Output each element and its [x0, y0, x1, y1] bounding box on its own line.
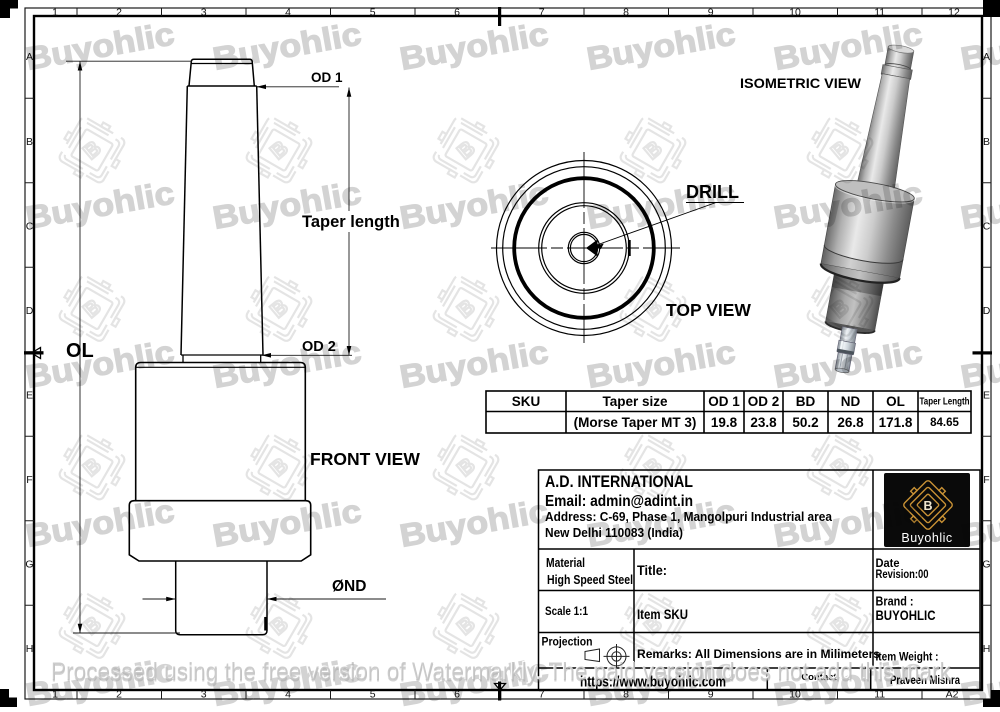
svg-text:OL: OL	[886, 394, 905, 409]
svg-text:FRONT VIEW: FRONT VIEW	[310, 449, 420, 469]
svg-text:1: 1	[52, 7, 58, 19]
svg-text:OD 2: OD 2	[748, 394, 780, 409]
svg-text:BUYOHLIC: BUYOHLIC	[876, 608, 936, 623]
svg-text:6: 6	[454, 7, 460, 19]
svg-text:Buyohlic: Buyohlic	[397, 15, 551, 77]
svg-text:Buyohlic: Buyohlic	[958, 333, 1000, 395]
svg-text:26.8: 26.8	[837, 415, 864, 430]
svg-text:B: B	[26, 136, 33, 148]
svg-text:Buyohlic: Buyohlic	[210, 492, 364, 554]
svg-text:12: 12	[948, 7, 960, 19]
svg-text:Projection: Projection	[542, 637, 593, 649]
svg-text:10: 10	[789, 7, 801, 19]
svg-text:Buyohlic: Buyohlic	[901, 531, 952, 545]
svg-text:5: 5	[370, 689, 376, 701]
svg-text:84.65: 84.65	[930, 417, 959, 429]
svg-text:G: G	[982, 559, 990, 571]
svg-text:Buyohlic: Buyohlic	[958, 15, 1000, 77]
svg-text:3: 3	[201, 7, 207, 19]
svg-text:B: B	[923, 499, 932, 513]
svg-text:Date: Date	[876, 556, 900, 570]
svg-text:Buyohlic: Buyohlic	[958, 174, 1000, 236]
svg-text:H: H	[983, 643, 991, 655]
svg-text:Buyohlic: Buyohlic	[397, 174, 551, 236]
svg-text:D: D	[983, 305, 991, 317]
svg-text:5: 5	[370, 7, 376, 19]
svg-text:9: 9	[708, 7, 714, 19]
svg-text:Brand :: Brand :	[876, 594, 914, 609]
svg-text:Scale 1:1: Scale 1:1	[545, 606, 589, 618]
svg-text:H: H	[26, 643, 34, 655]
svg-text:4: 4	[285, 7, 291, 19]
svg-text:Processed using the free versi: Processed using the free version of Wate…	[51, 658, 951, 686]
svg-text:Buyohlic: Buyohlic	[23, 15, 177, 77]
svg-text:19.8: 19.8	[711, 415, 738, 430]
svg-text:Buyohlic: Buyohlic	[958, 651, 1000, 707]
svg-text:Buyohlic: Buyohlic	[210, 15, 364, 77]
svg-text:Revision:00: Revision:00	[876, 569, 929, 581]
svg-text:ND: ND	[841, 394, 861, 409]
svg-text:Buyohlic: Buyohlic	[397, 492, 551, 554]
svg-text:F: F	[26, 474, 32, 486]
svg-text:G: G	[25, 559, 33, 571]
svg-text:D: D	[26, 305, 34, 317]
svg-text:Buyohlic: Buyohlic	[397, 333, 551, 395]
svg-text:50.2: 50.2	[792, 415, 818, 430]
svg-text:SKU: SKU	[512, 394, 541, 409]
svg-text:11: 11	[874, 7, 885, 19]
svg-text:Buyohlic: Buyohlic	[210, 333, 364, 395]
svg-text:Buyohlic: Buyohlic	[23, 492, 177, 554]
svg-text:Buyohlic: Buyohlic	[23, 333, 177, 395]
svg-text:OD 1: OD 1	[708, 394, 740, 409]
svg-text:F: F	[983, 474, 989, 486]
svg-text:A.D. INTERNATIONAL: A.D. INTERNATIONAL	[545, 473, 693, 491]
svg-text:High Speed Steel: High Speed Steel	[547, 573, 633, 587]
svg-text:ØND: ØND	[332, 578, 366, 595]
svg-text:ISOMETRIC VIEW: ISOMETRIC VIEW	[740, 75, 862, 91]
svg-text:TOP VIEW: TOP VIEW	[666, 300, 751, 320]
svg-text:BD: BD	[796, 394, 816, 409]
svg-text:OD 1: OD 1	[311, 70, 343, 85]
svg-text:Taper size: Taper size	[602, 394, 668, 409]
svg-text:3: 3	[201, 689, 207, 701]
svg-text:Buyohlic: Buyohlic	[584, 15, 738, 77]
svg-text:(Morse Taper MT 3): (Morse Taper MT 3)	[574, 415, 697, 430]
svg-text:Buyohlic: Buyohlic	[23, 174, 177, 236]
svg-text:Title:: Title:	[637, 563, 667, 578]
svg-text:Material: Material	[546, 556, 585, 570]
svg-text:23.8: 23.8	[750, 415, 777, 430]
svg-text:B: B	[983, 136, 990, 148]
svg-text:Buyohlic: Buyohlic	[584, 333, 738, 395]
svg-text:171.8: 171.8	[879, 415, 913, 430]
svg-text:Taper Length: Taper Length	[920, 396, 970, 408]
svg-text:8: 8	[623, 7, 629, 19]
svg-text:2: 2	[116, 7, 122, 19]
